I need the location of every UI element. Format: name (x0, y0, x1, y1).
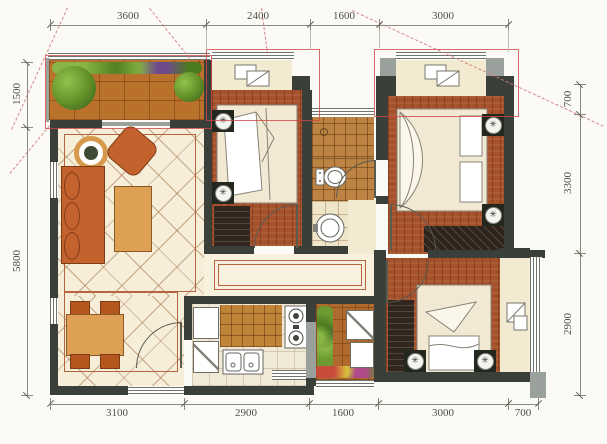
kitchen-counter (220, 305, 282, 347)
dim-label: 3000 (432, 407, 454, 419)
wall (306, 304, 316, 322)
dim-label: 2900 (562, 313, 574, 335)
wall (294, 246, 348, 254)
kitchen-sink-icon (222, 349, 264, 375)
wall (50, 324, 58, 388)
ac-unit-icon: ✳ (404, 350, 426, 372)
wall (184, 296, 192, 340)
highlight-balcony (45, 55, 212, 129)
bathroom-window (312, 108, 374, 117)
floor-drain-icon (320, 128, 328, 136)
highlight-bay-bedroom2 (206, 49, 320, 121)
dim-tick (574, 253, 586, 254)
ac-unit-icon: ✳ (482, 114, 504, 136)
kitchen-step-lines (272, 370, 306, 380)
utility-plants (317, 306, 333, 370)
wall (500, 248, 530, 257)
desk-icon (506, 302, 528, 332)
corner-counter (193, 341, 219, 373)
view-line (10, 125, 50, 173)
dim-tick (50, 398, 51, 410)
ac-unit-icon: ✳ (212, 182, 234, 204)
highlight-bay-master (374, 49, 519, 117)
wall (204, 246, 254, 254)
hall-lobby-floor (348, 200, 376, 254)
window (50, 298, 58, 324)
extension-line (206, 30, 207, 50)
wall (184, 296, 314, 304)
dim-label: 1600 (332, 407, 354, 419)
dim-tick (184, 398, 185, 410)
dim-tick (574, 84, 586, 85)
dim-tick (309, 398, 310, 410)
wall (50, 386, 128, 395)
bedroom3-bay-window (530, 257, 542, 372)
dim-label: 2900 (235, 407, 257, 419)
fan-glyph: ✳ (485, 117, 502, 134)
dim-tick (21, 395, 33, 396)
dim-label: 5800 (11, 250, 23, 272)
dim-tick (50, 19, 51, 31)
dim-label: 700 (515, 407, 532, 419)
dim-label: 3100 (106, 407, 128, 419)
dim-label: 3300 (562, 172, 574, 194)
fan-glyph: ✳ (407, 353, 424, 370)
wall (314, 296, 378, 304)
wall (376, 196, 388, 204)
stove-icon (284, 305, 308, 349)
washing-machine (346, 310, 374, 340)
wall (306, 378, 316, 386)
table-plant-icon (84, 146, 98, 160)
dining-chair (70, 354, 90, 369)
wall (374, 250, 386, 258)
sofa-cushion (64, 232, 80, 260)
utility-sliding-door[interactable] (306, 322, 316, 378)
wall (374, 372, 532, 382)
corridor-border-inner (218, 264, 362, 286)
dim-tick (21, 127, 33, 128)
dimension-line-top (50, 25, 508, 26)
fan-glyph: ✳ (477, 353, 494, 370)
sofa-cushion (64, 202, 80, 230)
dim-tick (508, 398, 509, 410)
coffee-table (114, 186, 152, 252)
extension-line (508, 30, 509, 52)
dimension-line-left (27, 62, 28, 395)
fan-glyph: ✳ (485, 207, 502, 224)
window (50, 162, 58, 198)
dining-table (66, 314, 124, 356)
dim-tick (538, 398, 539, 410)
floor-plan: ✳ ✳ ✳ ✳ (0, 0, 607, 444)
dim-label: 1600 (333, 10, 355, 22)
exterior-ledge (530, 372, 546, 398)
dim-label: 700 (562, 91, 574, 108)
extension-line (379, 30, 380, 48)
wall (50, 198, 58, 298)
dim-label: 1500 (11, 83, 23, 105)
dim-tick (574, 395, 586, 396)
dim-label: 3600 (117, 10, 139, 22)
ac-unit-icon: ✳ (482, 204, 504, 226)
fridge (193, 307, 219, 339)
extension-line (310, 30, 311, 50)
sofa-cushion (64, 172, 80, 200)
wall (184, 386, 314, 395)
ac-unit-icon: ✳ (474, 350, 496, 372)
window (128, 387, 184, 394)
dimension-line-right (580, 84, 581, 395)
dim-tick (21, 62, 33, 63)
wall (374, 258, 386, 372)
dim-label: 2400 (247, 10, 269, 22)
dining-chair (100, 354, 120, 369)
tv-cabinet-master (424, 226, 504, 252)
dimension-line-bottom (50, 404, 538, 405)
dim-label: 3000 (432, 10, 454, 22)
view-line (149, 8, 190, 59)
fan-glyph: ✳ (215, 185, 232, 202)
utility-cabinet (350, 342, 374, 368)
wardrobe-bedroom2 (214, 206, 250, 248)
sink-icon (313, 210, 345, 244)
dim-tick (378, 398, 379, 410)
utility-window (316, 380, 374, 388)
dim-tick (574, 114, 586, 115)
shower-partition-line (312, 158, 374, 159)
bed-master (396, 108, 488, 212)
